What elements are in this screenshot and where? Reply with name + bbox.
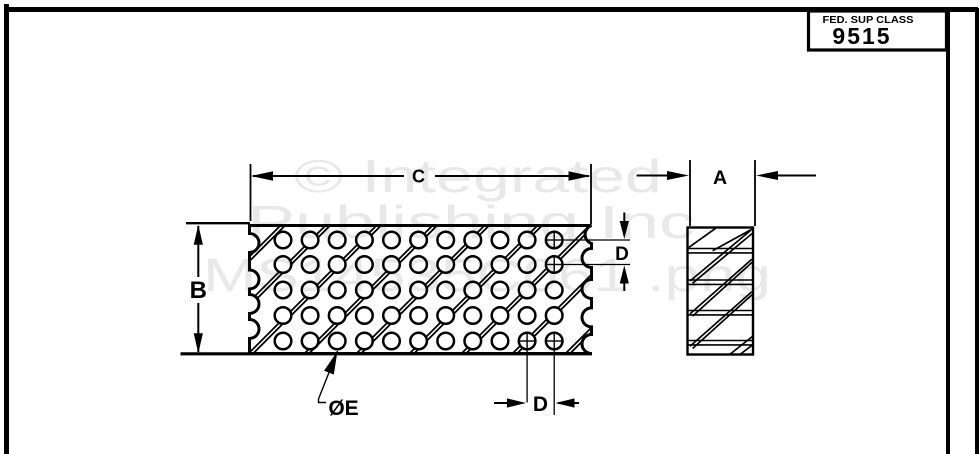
svg-text:ØE: ØE (328, 397, 358, 420)
svg-text:Publishing Inc: Publishing Inc (247, 196, 695, 248)
svg-text:MS14535C061 .png: MS14535C061 .png (203, 249, 771, 301)
svg-text:© Integrated: © Integrated (294, 150, 662, 202)
svg-text:A: A (713, 167, 727, 189)
svg-text:D: D (533, 393, 548, 416)
svg-text:9515: 9515 (832, 23, 891, 49)
